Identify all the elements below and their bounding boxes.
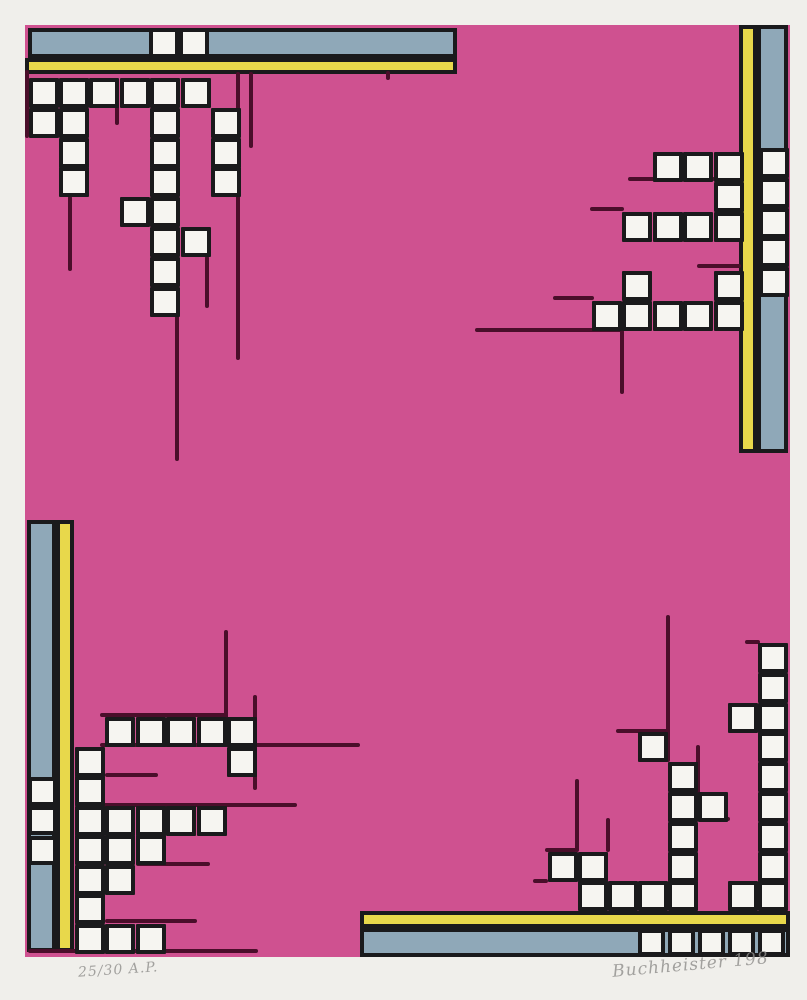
white-square [622, 212, 652, 242]
white-square [578, 881, 608, 911]
white-square [638, 881, 668, 911]
black-line [68, 196, 72, 271]
white-square [548, 852, 578, 882]
black-line [105, 773, 158, 777]
white-square [136, 835, 166, 865]
left-yellow-bar [56, 520, 74, 952]
white-square [638, 929, 665, 956]
white-square [150, 257, 180, 287]
white-square [150, 108, 180, 138]
white-square [592, 301, 622, 331]
white-square [179, 28, 209, 58]
white-square [75, 835, 105, 865]
white-square [758, 643, 788, 673]
white-square [75, 894, 105, 924]
white-square [75, 924, 105, 954]
black-line [533, 879, 548, 883]
black-line [575, 779, 579, 852]
white-square [105, 806, 135, 836]
white-square [227, 747, 257, 777]
bottom-yellow-bar [360, 911, 790, 928]
white-square [759, 237, 789, 267]
white-square [758, 881, 788, 911]
white-square [166, 806, 196, 836]
white-square [75, 865, 105, 895]
black-line [620, 330, 624, 394]
white-square [59, 138, 89, 168]
white-square [211, 167, 241, 197]
white-square [759, 267, 789, 297]
white-square [668, 852, 698, 882]
white-square [653, 301, 683, 331]
white-square [75, 776, 105, 806]
black-line [590, 207, 624, 211]
black-line [249, 72, 253, 148]
white-square [622, 301, 652, 331]
white-square [105, 924, 135, 954]
white-square [759, 148, 789, 178]
white-square [759, 208, 789, 238]
white-square [714, 271, 744, 301]
black-line [175, 314, 179, 461]
white-square [105, 835, 135, 865]
white-square [668, 822, 698, 852]
white-square [714, 152, 744, 182]
white-square [150, 138, 180, 168]
white-square [714, 212, 744, 242]
black-line [553, 296, 594, 300]
white-square [728, 703, 758, 733]
black-line [606, 818, 610, 852]
white-square [29, 78, 59, 108]
white-square [197, 806, 227, 836]
white-square [150, 78, 180, 108]
white-square [166, 717, 196, 747]
white-square [28, 836, 57, 865]
white-square [75, 747, 105, 777]
white-square [136, 806, 166, 836]
white-square [28, 806, 57, 835]
white-square [698, 792, 728, 822]
white-square [181, 78, 211, 108]
white-square [59, 108, 89, 138]
white-square [638, 732, 668, 762]
white-square [227, 717, 257, 747]
white-square [59, 167, 89, 197]
white-square [683, 212, 713, 242]
white-square [668, 881, 698, 911]
white-square [728, 881, 758, 911]
white-square [758, 732, 788, 762]
black-line [105, 919, 197, 923]
white-square [714, 182, 744, 212]
white-square [668, 792, 698, 822]
white-square [75, 806, 105, 836]
white-square [150, 197, 180, 227]
top-yellow-bar [25, 58, 457, 74]
white-square [759, 178, 789, 208]
white-square [758, 822, 788, 852]
white-square [136, 924, 166, 954]
white-square [714, 301, 744, 331]
white-square [120, 78, 150, 108]
white-square [758, 762, 788, 792]
white-square [668, 929, 695, 956]
white-square [150, 287, 180, 317]
white-square [105, 717, 135, 747]
black-line [224, 630, 228, 719]
white-square [758, 792, 788, 822]
white-square [653, 212, 683, 242]
white-square [683, 301, 713, 331]
white-square [668, 762, 698, 792]
black-line [205, 256, 209, 308]
white-square [211, 108, 241, 138]
white-square [28, 777, 57, 806]
white-square [622, 271, 652, 301]
white-square [120, 197, 150, 227]
white-square [89, 78, 119, 108]
white-square [578, 852, 608, 882]
white-square [211, 138, 241, 168]
white-square [149, 28, 179, 58]
left-blue-bar [27, 520, 56, 952]
black-line [697, 264, 741, 268]
black-line [386, 71, 390, 80]
white-square [150, 227, 180, 257]
white-square [150, 167, 180, 197]
white-square [59, 78, 89, 108]
white-square [136, 717, 166, 747]
white-square [683, 152, 713, 182]
white-square [758, 673, 788, 703]
white-square [653, 152, 683, 182]
white-square [758, 703, 788, 733]
white-square [29, 108, 59, 138]
white-square [758, 852, 788, 882]
white-square [608, 881, 638, 911]
white-square [181, 227, 211, 257]
white-square [105, 865, 135, 895]
white-square [197, 717, 227, 747]
top-blue-bar [28, 28, 457, 58]
artwork-photo: 25/30 A.P. Buchheister 198 [0, 0, 807, 1000]
